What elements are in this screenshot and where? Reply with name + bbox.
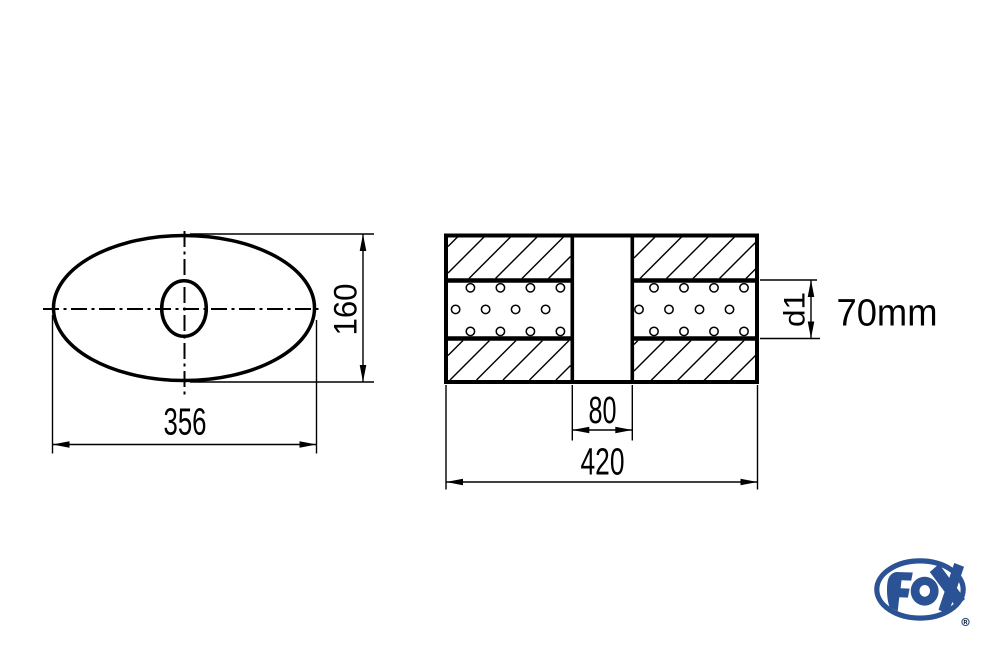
svg-text:70mm: 70mm xyxy=(837,293,938,335)
svg-text:R: R xyxy=(964,620,968,626)
svg-text:80: 80 xyxy=(589,390,617,432)
svg-text:420: 420 xyxy=(581,442,625,484)
svg-text:160: 160 xyxy=(328,284,364,336)
svg-text:356: 356 xyxy=(164,402,207,444)
svg-text:d1: d1 xyxy=(779,292,812,327)
